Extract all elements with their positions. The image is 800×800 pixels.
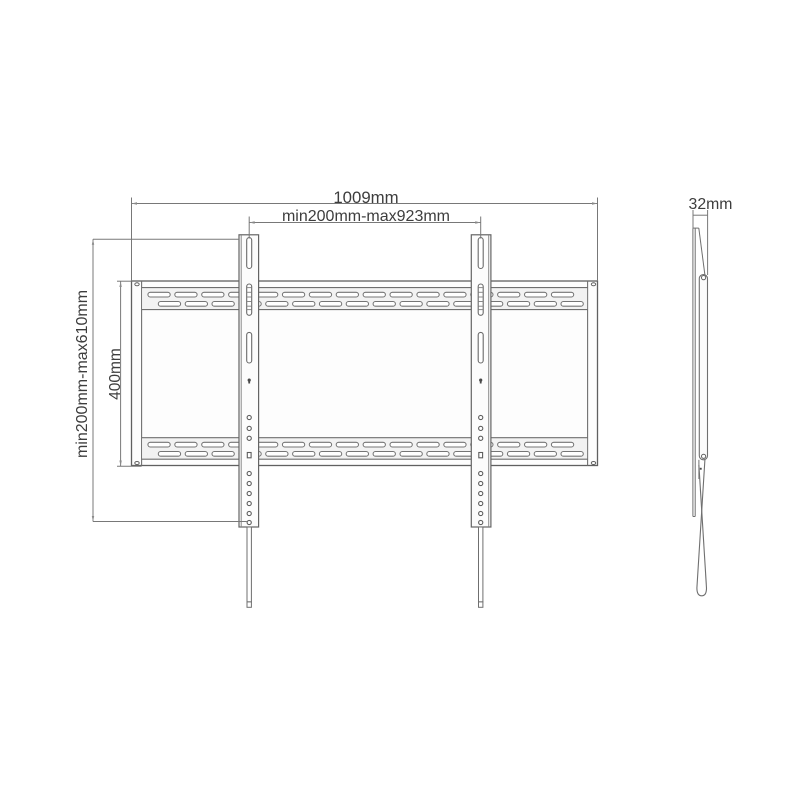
svg-text:400mm: 400mm	[107, 348, 124, 400]
svg-text:min200mm-max610mm: min200mm-max610mm	[74, 290, 91, 458]
svg-text:min200mm-max923mm: min200mm-max923mm	[282, 208, 450, 225]
svg-text:1009mm: 1009mm	[333, 188, 398, 207]
svg-text:32mm: 32mm	[689, 196, 733, 213]
